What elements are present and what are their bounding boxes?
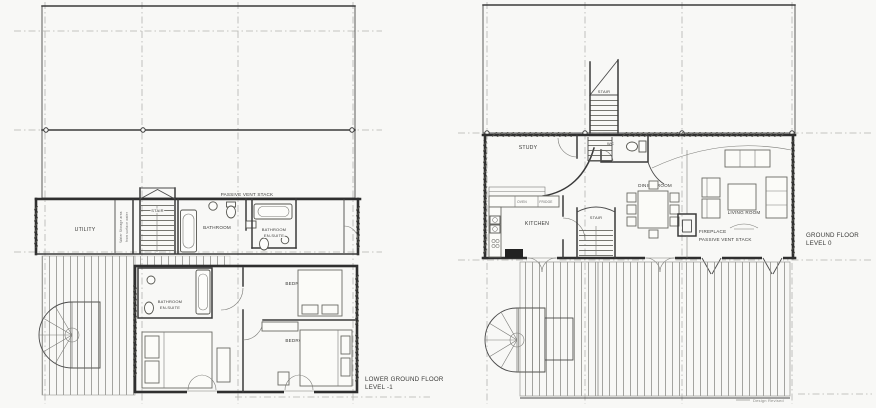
revision-note: Design Revised xyxy=(736,398,784,403)
label-bathroom: BATHROOM xyxy=(203,225,231,230)
range-cooker-icon xyxy=(505,249,523,258)
title-lg-line1: LOWER GROUND FLOOR xyxy=(365,376,444,383)
revision-note-text: Design Revised xyxy=(753,398,784,403)
label-ensuite-upper-1: BATHROOM xyxy=(262,227,286,232)
kitchen: OVEN FRIDGE KITCHEN xyxy=(489,196,585,258)
label-stair-lg: STAIR xyxy=(151,208,163,213)
internal-stair-top xyxy=(588,137,612,161)
upper-structure-right xyxy=(483,5,795,135)
label-passive-vent-stack-lg: PASSIVE VENT STACK xyxy=(221,192,274,197)
bedroom-1: BEDROOM 1 xyxy=(142,332,230,388)
title-gf-line1: GROUND FLOOR xyxy=(806,232,859,239)
label-kitchen: KITCHEN xyxy=(525,221,549,227)
bedroom-2: BEDROOM 2 xyxy=(262,270,342,331)
label-ensuite-lower-2: EN-SUITE xyxy=(160,305,180,310)
floor-plan-sheet: PASSIVE VENT STACK UTILITY Water Storage… xyxy=(0,0,876,408)
water-storage-note: Water Storage area from surface water xyxy=(119,211,129,242)
title-ground-floor: GROUND FLOOR LEVEL 0 xyxy=(806,232,859,247)
label-fireplace: FIREPLACE xyxy=(699,229,726,234)
label-internal-stair: STAIR xyxy=(590,215,602,220)
label-fridge: FRIDGE xyxy=(539,200,552,204)
title-lower-ground: LOWER GROUND FLOOR LEVEL -1 xyxy=(365,376,444,391)
lower-ground-floor-plan: PASSIVE VENT STACK UTILITY Water Storage… xyxy=(14,2,444,404)
label-external-stair: STAIR xyxy=(598,89,610,94)
svg-text:Water Storage area: Water Storage area xyxy=(119,211,123,242)
internal-stair-mid: STAIR xyxy=(577,207,615,258)
bedroom-block: BATHROOM EN-SUITE BEDROOM 1 BEDROOM 2 xyxy=(133,266,359,394)
dining-room: DINING ROOM xyxy=(627,181,679,238)
label-study: STUDY xyxy=(519,145,538,151)
label-ensuite-upper-2: EN-SUITE xyxy=(264,233,284,238)
label-ensuite-lower-1: BATHROOM xyxy=(158,299,182,304)
study: STUDY xyxy=(489,135,594,196)
label-oven: OVEN xyxy=(517,200,527,204)
label-passive-vent-stack-gf: PASSIVE VENT STACK xyxy=(699,237,752,242)
svg-text:from surface water: from surface water xyxy=(125,211,129,242)
bedroom-3: BEDROOM 3 xyxy=(278,330,352,386)
floor-plan-drawing: PASSIVE VENT STACK UTILITY Water Storage… xyxy=(0,0,876,408)
bathroom-ensuite-upper: BATHROOM EN-SUITE xyxy=(252,199,296,250)
external-stair: STAIR xyxy=(590,60,618,133)
upper-structure-left xyxy=(42,6,355,198)
upper-room-row: UTILITY Water Storage area from surface … xyxy=(34,188,360,254)
bathroom: BATHROOM xyxy=(178,199,256,253)
label-utility: UTILITY xyxy=(75,227,96,233)
label-living-room: LIVING ROOM xyxy=(728,210,761,215)
title-lg-line2: LEVEL -1 xyxy=(365,384,393,391)
ground-floor-plan: STAIR STUDY WC xyxy=(458,2,872,404)
title-gf-line2: LEVEL 0 xyxy=(806,240,832,247)
deck-ground-floor xyxy=(520,262,790,398)
bathroom-ensuite-lower: BATHROOM EN-SUITE xyxy=(138,268,212,318)
